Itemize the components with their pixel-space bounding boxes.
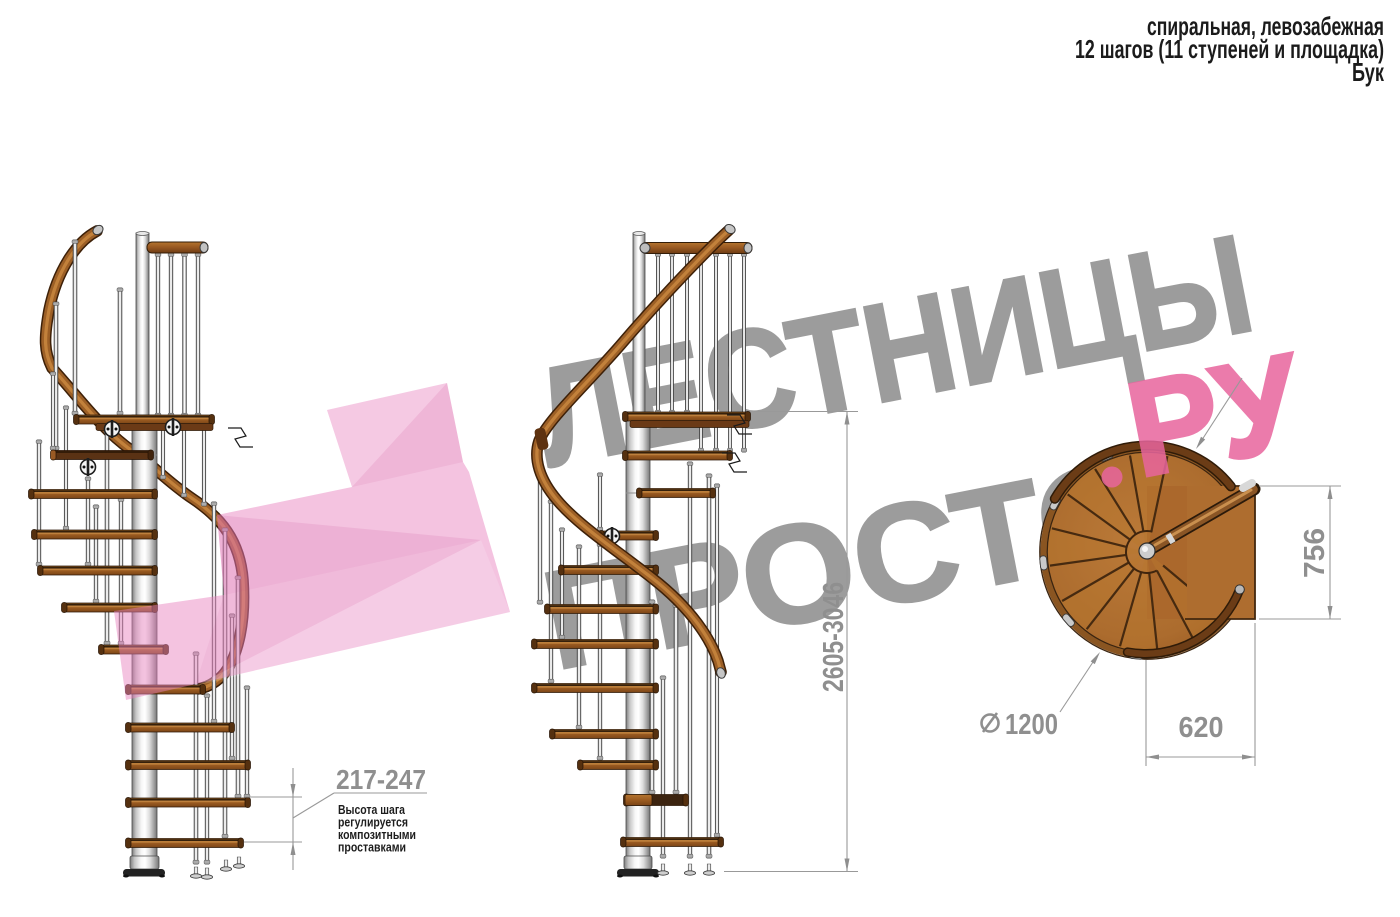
svg-text:217-247: 217-247 bbox=[336, 764, 426, 795]
svg-text:620: 620 bbox=[1179, 712, 1224, 744]
svg-text:РУ: РУ bbox=[1116, 326, 1315, 505]
svg-text:Высота шагарегулируетсякомпози: Высота шагарегулируетсякомпозитнымипрост… bbox=[338, 802, 416, 855]
svg-text:756: 756 bbox=[1299, 528, 1331, 578]
svg-text:1200: 1200 bbox=[1005, 709, 1058, 741]
svg-text:Бук: Бук bbox=[1352, 57, 1385, 87]
svg-text:2605-3046: 2605-3046 bbox=[818, 582, 850, 692]
svg-text:12 шагов (11 ступеней и площад: 12 шагов (11 ступеней и площадка) bbox=[1075, 34, 1384, 64]
